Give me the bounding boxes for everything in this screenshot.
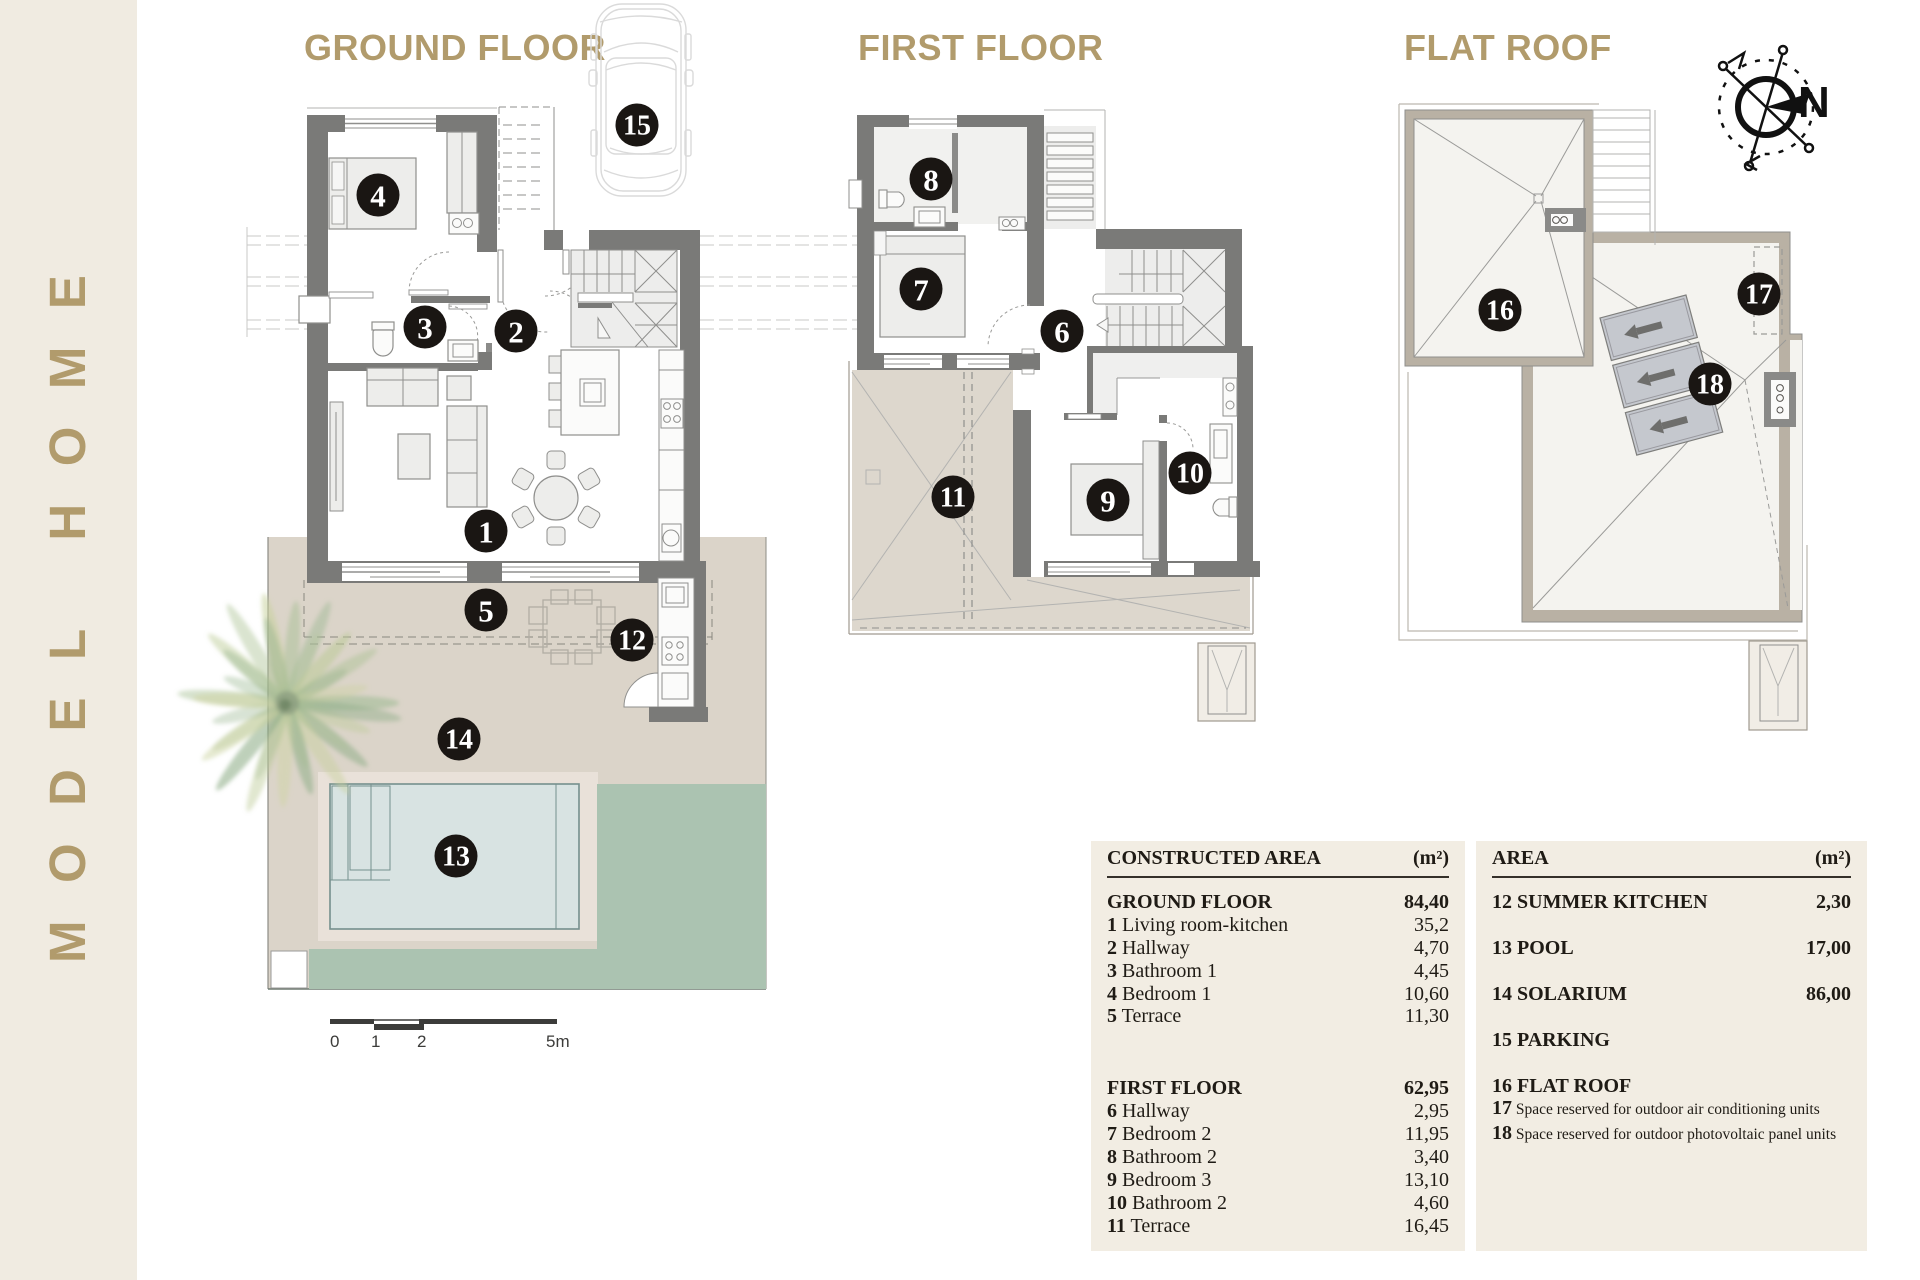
svg-text:4: 4 [370, 179, 386, 214]
svg-text:3: 3 [417, 311, 433, 346]
svg-text:7: 7 [913, 273, 929, 308]
svg-text:12: 12 [618, 626, 646, 657]
svg-text:15: 15 [623, 111, 651, 142]
svg-text:16: 16 [1486, 296, 1514, 327]
svg-text:8: 8 [923, 163, 939, 198]
svg-text:1: 1 [371, 1032, 380, 1051]
svg-text:2: 2 [417, 1032, 426, 1051]
svg-text:11: 11 [940, 483, 966, 514]
svg-text:6: 6 [1054, 315, 1070, 350]
svg-text:5m: 5m [546, 1032, 570, 1051]
svg-text:9: 9 [1100, 484, 1116, 519]
svg-text:N: N [1798, 78, 1830, 127]
svg-text:5: 5 [478, 594, 494, 629]
svg-text:1: 1 [478, 515, 494, 550]
svg-text:0: 0 [330, 1032, 339, 1051]
svg-text:13: 13 [442, 842, 470, 873]
svg-text:14: 14 [445, 725, 473, 756]
svg-text:18: 18 [1696, 370, 1724, 401]
svg-text:2: 2 [508, 315, 524, 350]
svg-text:17: 17 [1745, 280, 1773, 311]
svg-text:10: 10 [1176, 459, 1204, 490]
